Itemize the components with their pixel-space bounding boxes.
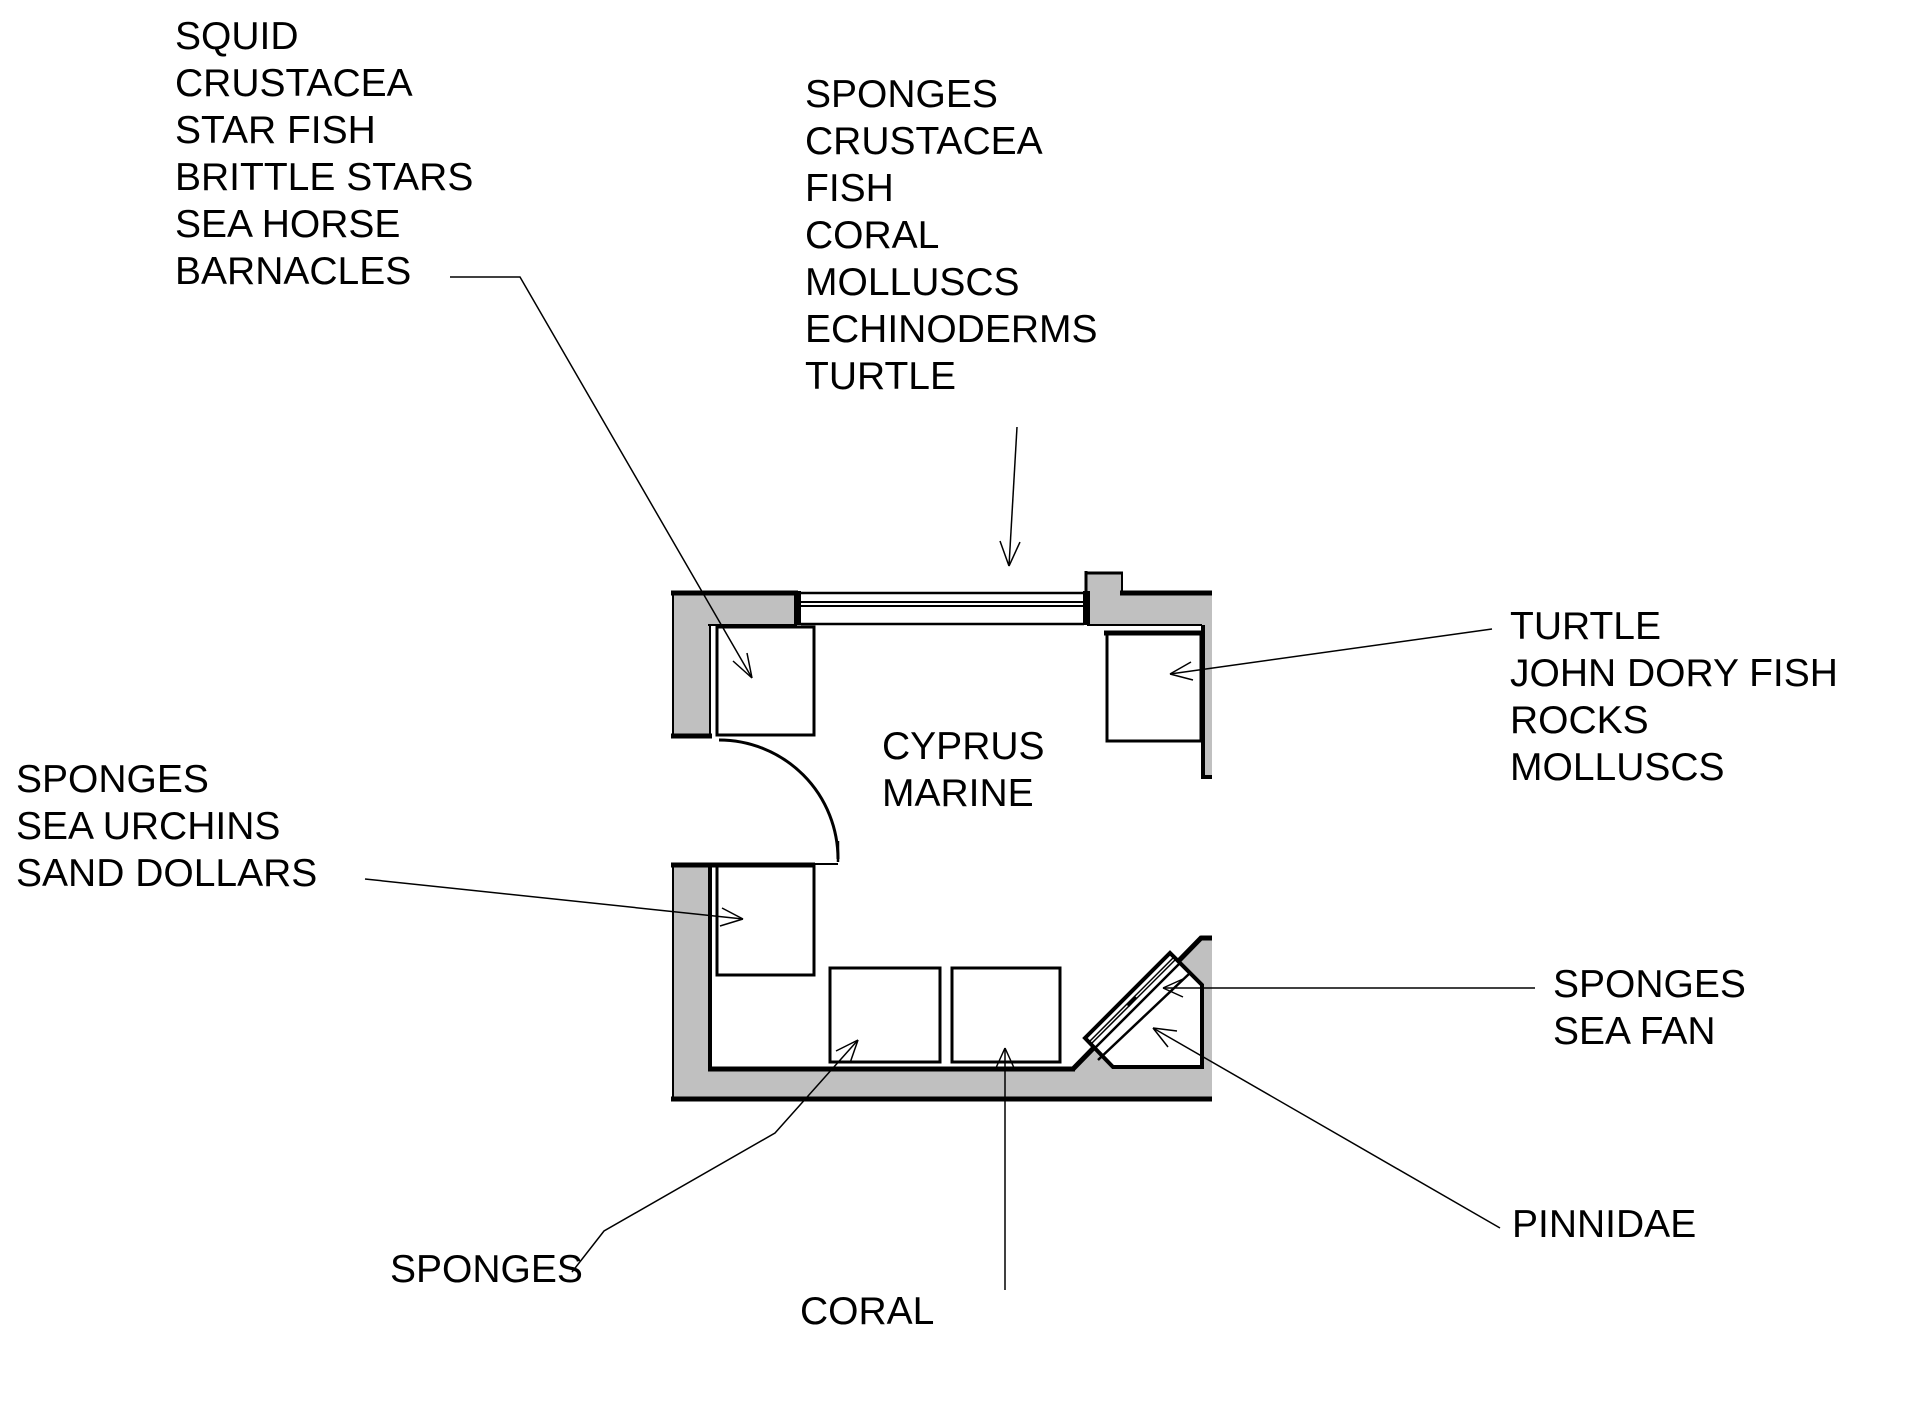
diagonal-case xyxy=(1085,953,1202,1067)
label-line: FISH xyxy=(805,165,1098,212)
label-line: SEA FAN xyxy=(1553,1008,1746,1055)
wall-left-upper-fill xyxy=(673,591,710,737)
diagonal-case-outline xyxy=(1085,953,1202,1067)
label-line: MOLLUSCS xyxy=(1510,744,1838,791)
label-line: MOLLUSCS xyxy=(805,259,1098,306)
label-line: JOHN DORY FISH xyxy=(1510,650,1838,697)
label-line: SPONGES xyxy=(1553,961,1746,1008)
label-top-center: SPONGES CRUSTACEA FISH CORAL MOLLUSCS EC… xyxy=(805,71,1098,400)
window-jamb xyxy=(1083,591,1090,625)
label-line: CRUSTACEA xyxy=(175,60,473,107)
case-left-lower xyxy=(717,866,814,975)
door-swing-arc xyxy=(719,740,838,859)
wall-top-right-fill xyxy=(1087,572,1212,625)
label-sponges-bottom: SPONGES xyxy=(390,1246,583,1293)
label-line: SEA URCHINS xyxy=(16,803,317,850)
label-line: PINNIDAE xyxy=(1512,1201,1696,1248)
label-line: SAND DOLLARS xyxy=(16,850,317,897)
floor-plan-page: SQUID CRUSTACEA STAR FISH BRITTLE STARS … xyxy=(0,0,1920,1404)
label-pinnidae: PINNIDAE xyxy=(1512,1201,1696,1248)
label-line: BRITTLE STARS xyxy=(175,154,473,201)
room-label-line: MARINE xyxy=(882,770,1045,817)
label-line: TURTLE xyxy=(805,353,1098,400)
label-line: SPONGES xyxy=(16,756,317,803)
room-label-line: CYPRUS xyxy=(882,723,1045,770)
label-sea-fan: SPONGES SEA FAN xyxy=(1553,961,1746,1055)
label-line: TURTLE xyxy=(1510,603,1838,650)
leader-turtle xyxy=(1170,629,1492,674)
case-top-right xyxy=(1107,634,1201,741)
label-line: STAR FISH xyxy=(175,107,473,154)
door xyxy=(719,740,838,864)
label-line: CORAL xyxy=(800,1288,934,1335)
label-line: SQUID xyxy=(175,13,473,60)
leader-pinnidae xyxy=(1153,1028,1500,1228)
label-line: BARNACLES xyxy=(175,248,473,295)
window-jamb xyxy=(794,591,801,625)
window xyxy=(794,591,1090,625)
label-line: CORAL xyxy=(805,212,1098,259)
label-left: SPONGES SEA URCHINS SAND DOLLARS xyxy=(16,756,317,897)
leader-top-center xyxy=(1009,427,1017,566)
label-line: SPONGES xyxy=(390,1246,583,1293)
label-line: CRUSTACEA xyxy=(805,118,1098,165)
label-top-left: SQUID CRUSTACEA STAR FISH BRITTLE STARS … xyxy=(175,13,473,295)
label-line: SEA HORSE xyxy=(175,201,473,248)
label-right: TURTLE JOHN DORY FISH ROCKS MOLLUSCS xyxy=(1510,603,1838,791)
label-line: ECHINODERMS xyxy=(805,306,1098,353)
label-coral-bottom: CORAL xyxy=(800,1288,934,1335)
label-line: ROCKS xyxy=(1510,697,1838,744)
case-bottom-coral xyxy=(952,968,1060,1062)
label-line: SPONGES xyxy=(805,71,1098,118)
room-label: CYPRUS MARINE xyxy=(882,723,1045,817)
case-bottom-sponges xyxy=(830,968,940,1062)
